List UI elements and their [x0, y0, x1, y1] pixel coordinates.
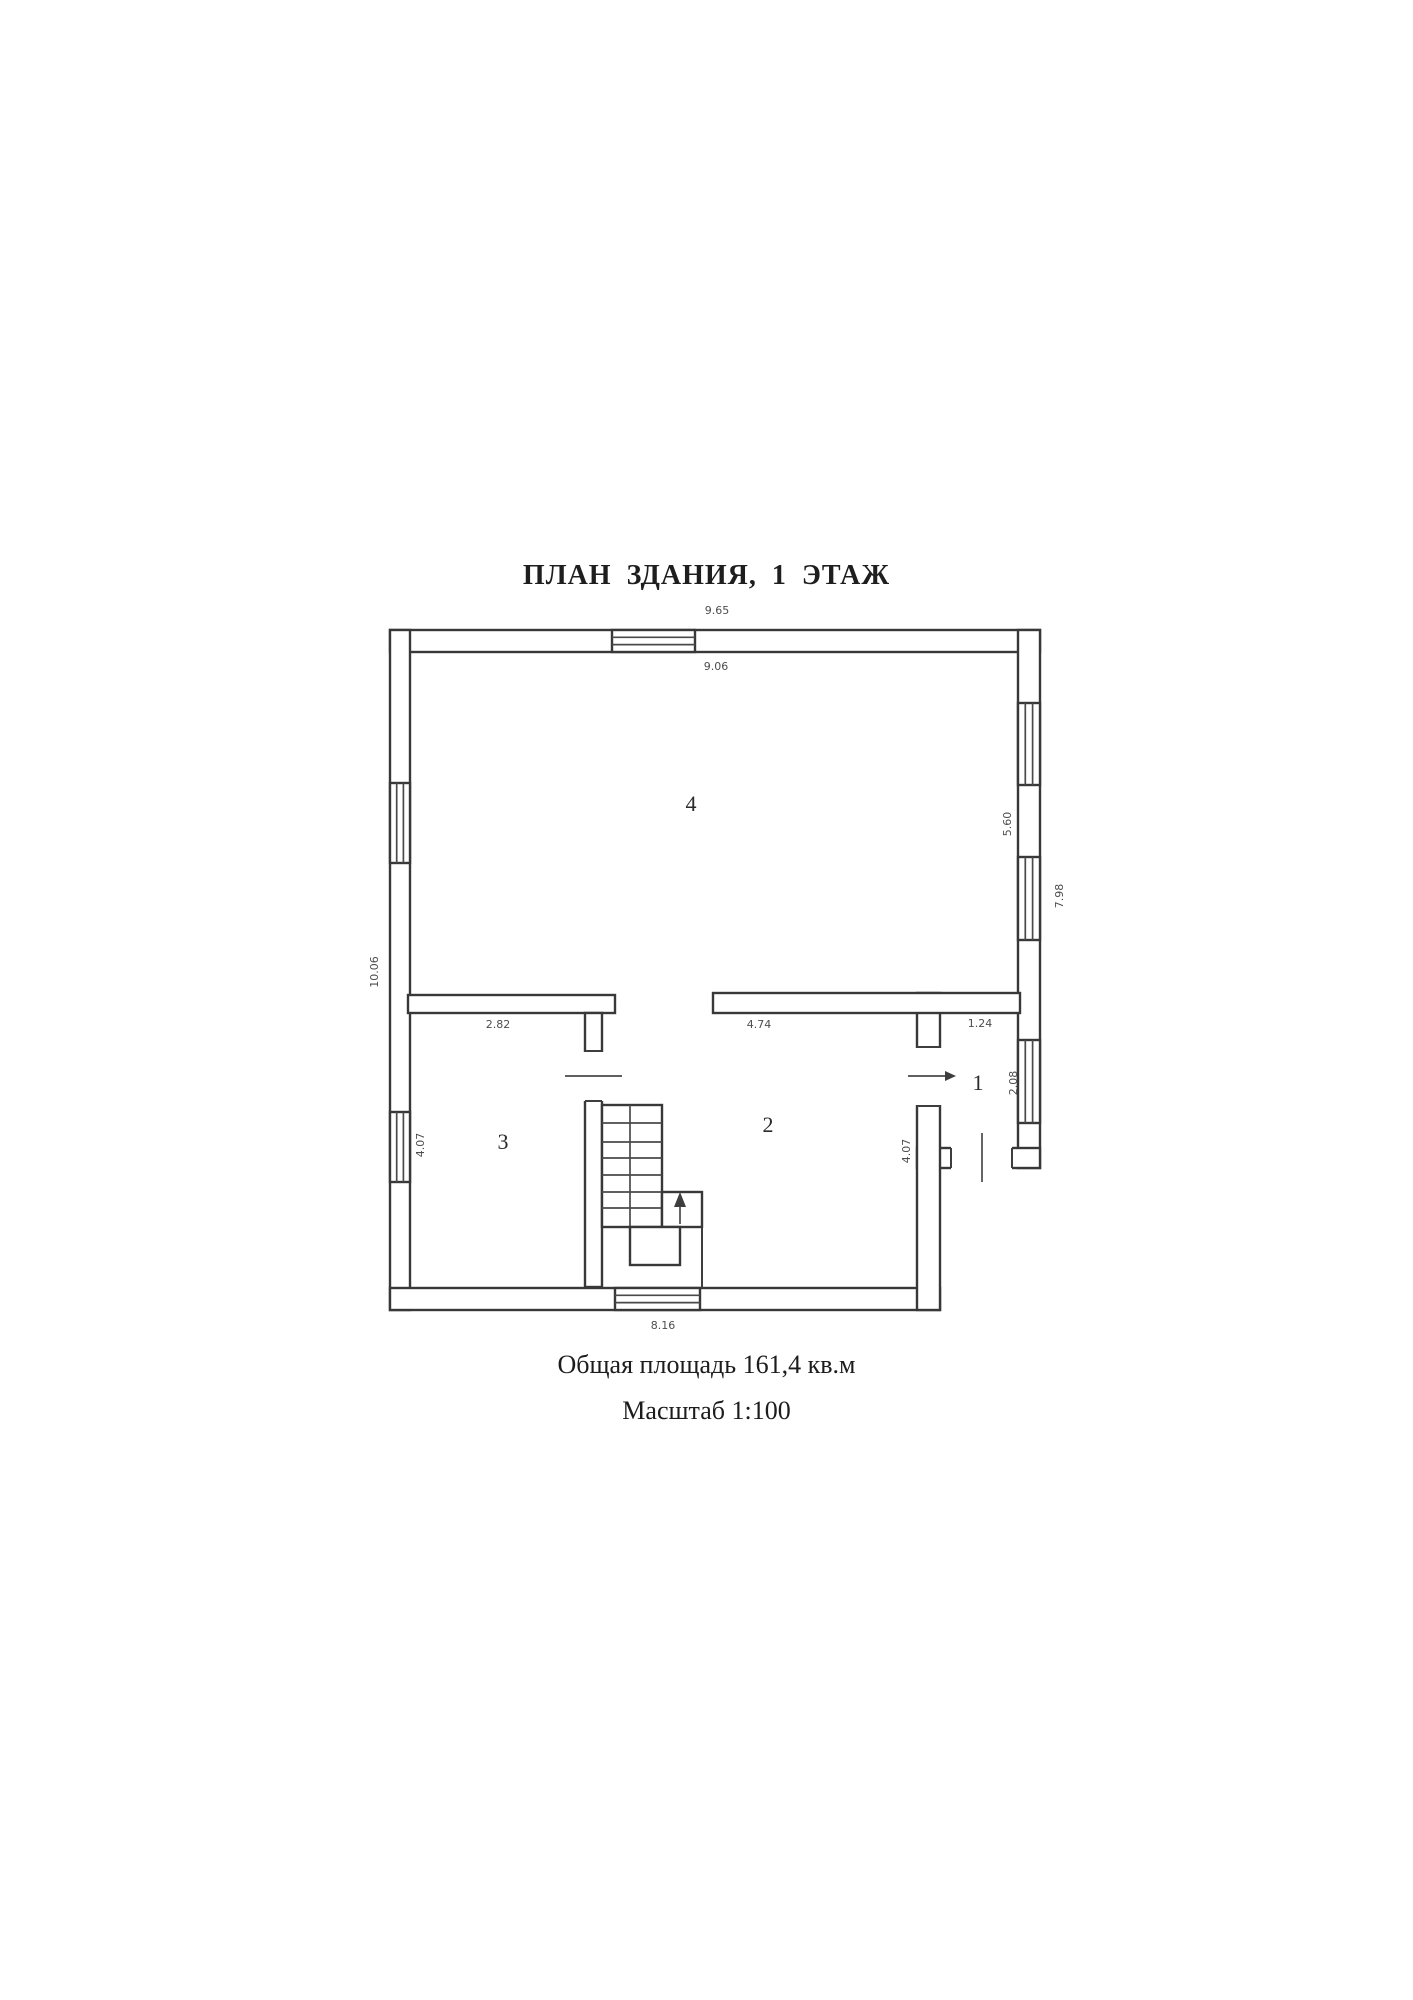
room-label-4: 4 — [686, 791, 697, 816]
window-left-lower — [390, 1112, 410, 1182]
dim-bottom-width: 8.16 — [651, 1319, 676, 1332]
dim-top-outer: 9.65 — [705, 604, 730, 617]
dim-room2-width: 4.74 — [747, 1018, 772, 1031]
dim-room3-height: 4.07 — [414, 1133, 427, 1158]
dim-right-wall: 7.98 — [1053, 884, 1066, 909]
dim-room3-width: 2.82 — [486, 1018, 511, 1031]
total-area-text: Общая площадь 161,4 кв.м — [0, 1350, 1413, 1380]
floor-plan-drawing: 9.65 9.06 2.82 4.74 1.24 8.16 10.06 4.07… — [0, 0, 1413, 2000]
wall-interior-horizontal-right — [713, 993, 1020, 1013]
room-label-1: 1 — [973, 1070, 984, 1095]
window-right-room1 — [1018, 1040, 1040, 1123]
window-right-1 — [1018, 703, 1040, 785]
dim-room2-height: 4.07 — [900, 1139, 913, 1164]
dim-right-upper: 5.60 — [1001, 812, 1014, 837]
dim-room1-height: 2.08 — [1007, 1071, 1020, 1096]
wall-left — [390, 630, 410, 1310]
room-label-2: 2 — [763, 1112, 774, 1137]
dim-top-inner: 9.06 — [704, 660, 729, 673]
dim-room1-width: 1.24 — [968, 1017, 993, 1030]
wall-interior-vertical-right — [917, 993, 940, 1310]
entrance-door-bottom — [615, 1288, 700, 1310]
room-label-3: 3 — [498, 1129, 509, 1154]
dim-left-height: 10.06 — [368, 956, 381, 988]
window-left-upper — [390, 783, 410, 863]
door-arrow-icon — [945, 1071, 956, 1081]
scale-text: Масштаб 1:100 — [0, 1396, 1413, 1426]
wall-interior-horizontal-left — [408, 995, 615, 1013]
window-top — [612, 630, 695, 652]
staircase — [602, 1105, 702, 1288]
wall-top — [390, 630, 1040, 652]
window-right-2 — [1018, 857, 1040, 940]
